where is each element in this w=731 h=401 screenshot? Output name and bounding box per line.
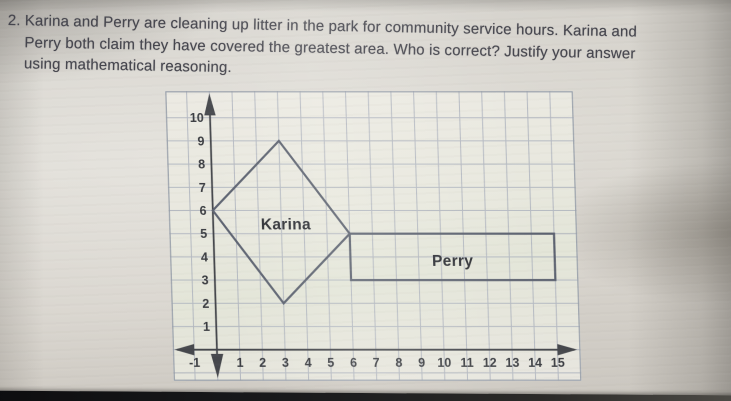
karina-shape: Karina	[211, 141, 352, 303]
svg-text:1: 1	[236, 356, 243, 370]
problem-statement: 2. Karina and Perry are cleaning up litt…	[7, 10, 637, 86]
svg-text:6: 6	[350, 356, 357, 370]
worksheet-photo: 2. Karina and Perry are cleaning up litt…	[0, 0, 731, 401]
grid-border	[166, 92, 581, 380]
svg-text:9: 9	[418, 356, 425, 370]
y-axis	[210, 108, 218, 363]
svg-text:15: 15	[551, 356, 565, 370]
svg-text:4: 4	[201, 250, 208, 264]
svg-text:3: 3	[282, 356, 289, 370]
paper-content: 2. Karina and Perry are cleaning up litt…	[0, 0, 731, 401]
perry-label: Perry	[432, 253, 474, 270]
svg-text:8: 8	[395, 356, 402, 370]
karina-label: Karina	[261, 216, 312, 233]
grid-lines	[165, 91, 582, 381]
svg-text:5: 5	[327, 356, 334, 370]
svg-text:4: 4	[304, 356, 311, 370]
coordinate-grid-svg: KarinaPerry-1123456789101112131415123456…	[165, 91, 582, 381]
svg-text:2: 2	[259, 356, 266, 370]
svg-text:10: 10	[190, 111, 204, 125]
svg-text:2: 2	[202, 297, 209, 311]
svg-text:9: 9	[197, 134, 204, 148]
x-axis-right-arrow-icon	[557, 344, 577, 355]
svg-text:12: 12	[483, 356, 497, 370]
x-axis-left-arrow-icon	[174, 344, 194, 355]
svg-text:-1: -1	[189, 356, 201, 370]
svg-text:5: 5	[200, 227, 207, 241]
svg-text:3: 3	[201, 274, 208, 288]
x-tick-labels: -1123456789101112131415	[189, 356, 565, 370]
svg-text:13: 13	[505, 356, 519, 370]
y-axis-down-arrow-icon	[211, 354, 224, 378]
svg-text:14: 14	[528, 356, 542, 370]
svg-text:6: 6	[199, 204, 206, 218]
svg-text:10: 10	[437, 356, 451, 370]
svg-text:11: 11	[460, 356, 474, 370]
y-axis-up-arrow-icon	[204, 93, 216, 115]
svg-text:1: 1	[203, 320, 210, 334]
svg-text:7: 7	[199, 181, 206, 195]
problem-text: Karina and Perry are cleaning up litter …	[24, 10, 637, 86]
svg-text:8: 8	[198, 158, 205, 172]
coordinate-graph: KarinaPerry-1123456789101112131415123456…	[165, 91, 582, 381]
svg-text:7: 7	[373, 356, 380, 370]
problem-number: 2.	[7, 10, 25, 75]
